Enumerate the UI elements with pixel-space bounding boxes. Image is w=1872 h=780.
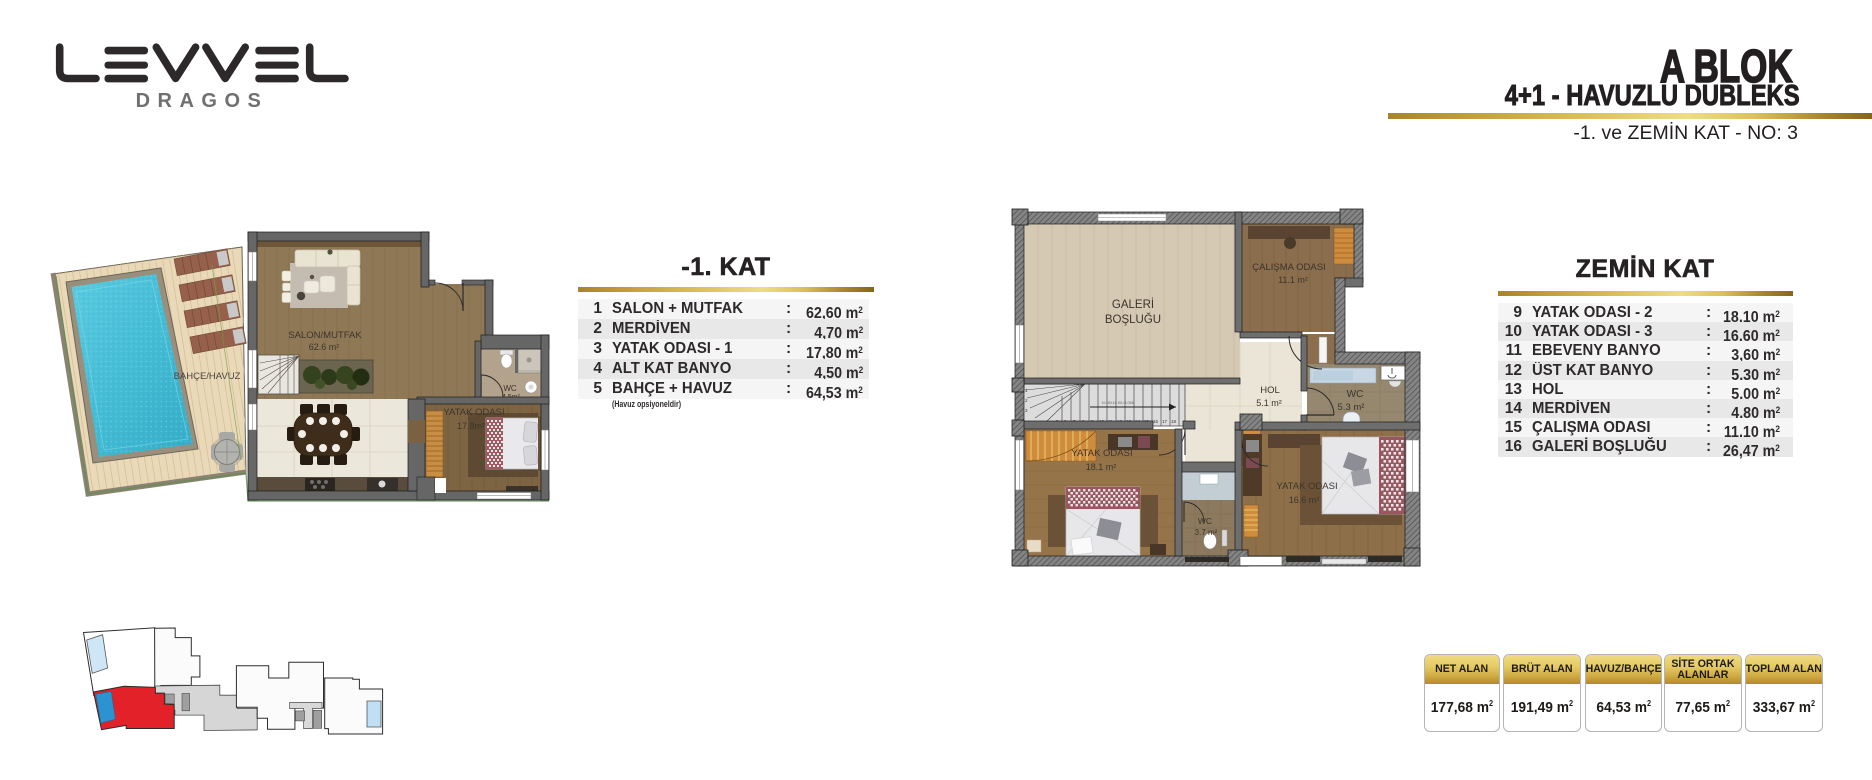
- svg-text:17.8m²: 17.8m²: [457, 421, 485, 431]
- svg-text:ÇALIŞMA ODASI: ÇALIŞMA ODASI: [1252, 262, 1325, 273]
- svg-text:DRAGOS: DRAGOS: [136, 90, 269, 112]
- svg-text:17: 17: [1162, 419, 1168, 424]
- svg-text:GALERİ: GALERİ: [1112, 298, 1154, 311]
- svg-text:3.7 m²: 3.7 m²: [1195, 528, 1218, 537]
- svg-text:WC: WC: [1198, 516, 1212, 526]
- svg-text:YATAK ODASI: YATAK ODASI: [443, 407, 504, 418]
- svg-text:5.3 m²: 5.3 m²: [1338, 402, 1365, 413]
- svg-text:5.1 m²: 5.1 m²: [1256, 398, 1282, 408]
- svg-text:YATAK ODASI: YATAK ODASI: [1071, 448, 1132, 459]
- svg-text:18: 18: [1171, 419, 1177, 424]
- svg-text:16.6 m²: 16.6 m²: [1289, 495, 1320, 505]
- svg-text:N:18X16.90=3.05M: N:18X16.90=3.05M: [1102, 401, 1135, 405]
- svg-text:16: 16: [1153, 419, 1159, 424]
- svg-text:18.1 m²: 18.1 m²: [1086, 462, 1117, 472]
- svg-text:BOŞLUĞU: BOŞLUĞU: [1105, 313, 1161, 326]
- svg-text:11.1 m²: 11.1 m²: [1278, 275, 1308, 285]
- svg-text:WC: WC: [1347, 389, 1364, 400]
- svg-text:SALON/MUTFAK: SALON/MUTFAK: [288, 330, 362, 341]
- svg-text:62.6 m²: 62.6 m²: [309, 342, 340, 352]
- svg-text:HOL: HOL: [1260, 385, 1280, 396]
- svg-text:WC: WC: [503, 384, 517, 393]
- svg-text:YATAK ODASI: YATAK ODASI: [1276, 481, 1337, 492]
- svg-text:BAHÇE/HAVUZ: BAHÇE/HAVUZ: [174, 371, 241, 382]
